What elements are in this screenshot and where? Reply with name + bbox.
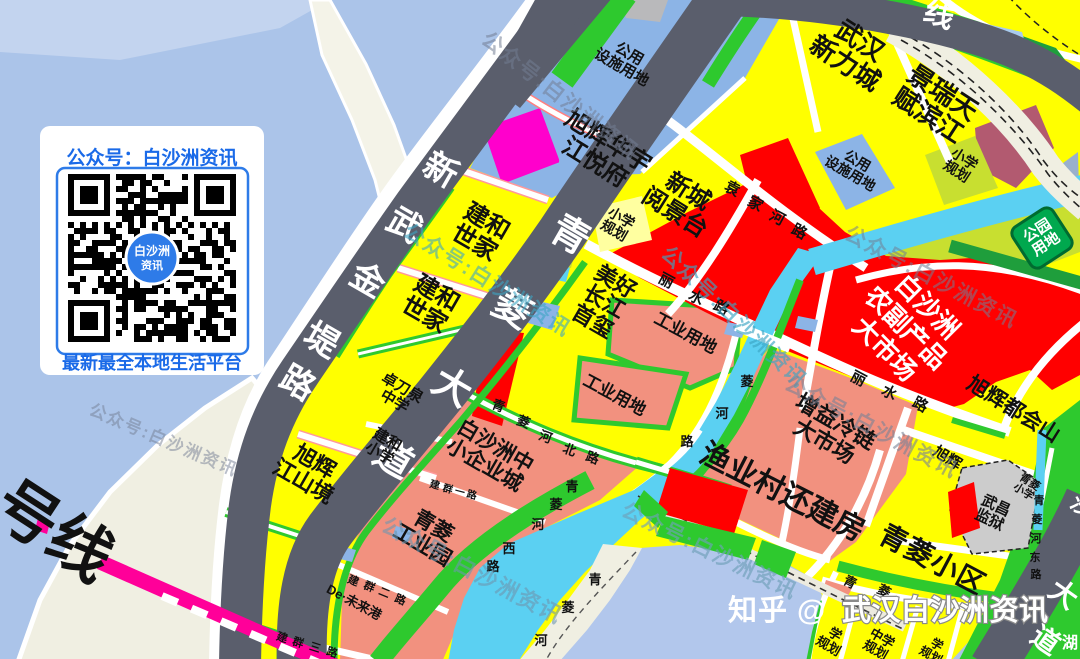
svg-text:最新最全本地生活平台: 最新最全本地生活平台 xyxy=(62,352,242,373)
svg-text:路: 路 xyxy=(1031,567,1043,581)
svg-text:路: 路 xyxy=(680,434,694,449)
svg-text:知乎 @: 知乎 @ xyxy=(728,593,826,627)
svg-text:白沙洲: 白沙洲 xyxy=(134,243,170,258)
svg-text:武汉白沙洲资讯: 武汉白沙洲资讯 xyxy=(842,594,1049,627)
svg-text:湖: 湖 xyxy=(1062,634,1078,652)
svg-text:东: 东 xyxy=(1030,550,1041,564)
svg-text:河: 河 xyxy=(1031,531,1042,545)
svg-text:资讯: 资讯 xyxy=(141,258,163,272)
svg-text:菱: 菱 xyxy=(1032,512,1043,526)
svg-text:青: 青 xyxy=(565,479,578,494)
svg-text:青: 青 xyxy=(1034,493,1045,507)
svg-text:河: 河 xyxy=(531,517,544,532)
svg-text:西: 西 xyxy=(502,541,515,556)
svg-text:河: 河 xyxy=(534,633,547,648)
svg-text:菱: 菱 xyxy=(740,374,753,389)
svg-text:河: 河 xyxy=(715,406,728,421)
svg-text:青: 青 xyxy=(588,572,601,587)
svg-text:菱: 菱 xyxy=(549,497,562,512)
svg-text:公众号：白沙洲资讯: 公众号：白沙洲资讯 xyxy=(66,146,237,169)
